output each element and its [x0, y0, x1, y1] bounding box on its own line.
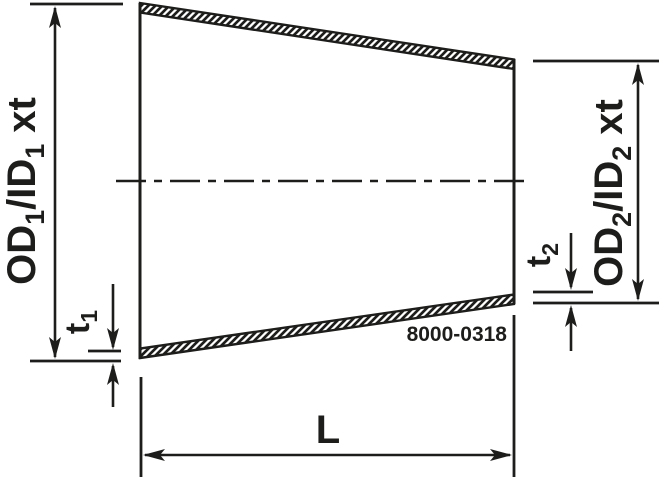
length-label: L — [316, 408, 340, 452]
dimension-t1: t1 — [59, 284, 121, 407]
reducer-technical-drawing: OD1/ID1xt t1 OD2/ID2xt t2 — [0, 0, 659, 477]
t2-label: t2 — [520, 243, 563, 267]
dimension-od1: OD1/ID1xt — [0, 4, 123, 361]
technical-drawing-page: OD1/ID1xt t1 OD2/ID2xt t2 — [0, 0, 659, 477]
reducer-body — [116, 3, 531, 359]
drawing-number: 8000-0318 — [407, 323, 508, 346]
t1-label: t1 — [59, 310, 102, 334]
dimension-t2: t2 — [520, 233, 593, 351]
od2-label: OD2/ID2xt — [587, 99, 637, 287]
od1-label: OD1/ID1xt — [0, 97, 50, 285]
top-wall-section — [140, 3, 514, 69]
